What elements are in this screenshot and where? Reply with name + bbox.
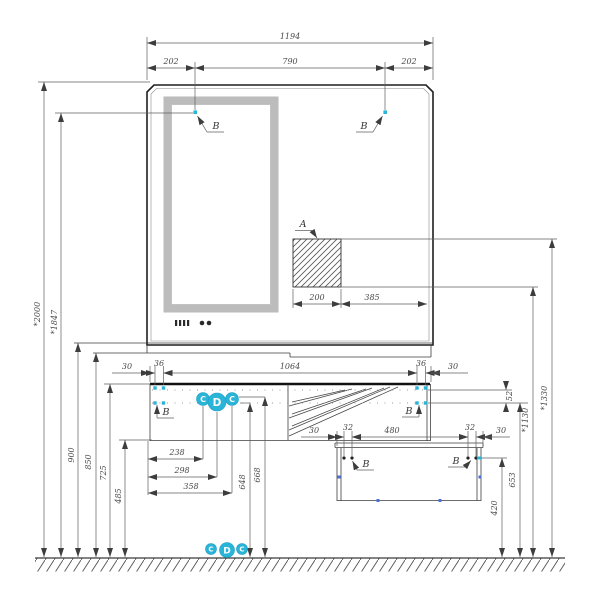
marker-c-label: C — [239, 546, 244, 554]
dim-top-right: 202 — [400, 57, 416, 66]
marker-c-label: C — [200, 395, 206, 404]
callout-b-label: B — [212, 121, 220, 132]
vanity-unit: B B — [74, 343, 433, 441]
fixing-point — [193, 110, 197, 114]
marker-d-label: D — [213, 397, 222, 409]
technical-drawing-canvas: A B B 200 385 — [0, 0, 600, 600]
dim-298: 298 — [173, 466, 189, 475]
dim-1330: *1330 — [540, 386, 549, 410]
dim-under-right-30: 30 — [448, 362, 458, 371]
indicator-dot-icon — [200, 321, 205, 326]
callout-a-label: A — [299, 219, 307, 230]
marker-c-label: C — [208, 546, 213, 554]
bottom-left-dimensions: 238 298 358 648 668 — [148, 397, 265, 557]
dim-648: 648 — [238, 474, 247, 489]
dim-1847: *1847 — [50, 309, 59, 334]
callout-b-vanity-right: B — [402, 405, 419, 417]
dim-top-center: 790 — [282, 57, 297, 66]
dim-420: 420 — [490, 500, 499, 516]
dim-cab-left-32: 32 — [343, 423, 353, 432]
dim-cab-left-30: 30 — [309, 426, 319, 435]
vanity-fixing-points — [153, 386, 427, 404]
vanity-dimensions: 30 36 1064 36 30 — [112, 359, 468, 385]
dim-under-left-30: 30 — [122, 362, 132, 371]
callout-b-vanity-left: B — [157, 405, 174, 418]
dim-1130: *1130 — [521, 408, 530, 432]
mounting-zone-a-hatch — [293, 239, 341, 287]
callout-b-label: B — [362, 459, 370, 470]
dim-total-width: 1194 — [280, 32, 300, 41]
callout-b-label: B — [360, 121, 368, 132]
dim-725: 725 — [99, 465, 108, 480]
ground-hatch — [35, 559, 565, 572]
dim-2000: *2000 — [33, 302, 42, 326]
dim-hatch-width: 200 — [308, 293, 324, 302]
dim-668: 668 — [253, 467, 262, 482]
callout-b-label: B — [452, 456, 460, 467]
dim-under-right-36: 36 — [416, 359, 426, 368]
dim-cab-480: 480 — [383, 426, 399, 435]
dim-238: 238 — [168, 448, 184, 457]
fixing-markers-floor: C D C — [206, 543, 248, 558]
mirror-cabinet: A B B 200 385 — [147, 85, 557, 345]
cabinet-fixing-points — [338, 457, 482, 503]
marker-d-label: D — [223, 547, 230, 557]
dim-cab-right-32: 32 — [465, 423, 475, 432]
dim-653: 653 — [508, 472, 517, 487]
dim-850: 850 — [84, 454, 93, 469]
dim-cab-right-30: 30 — [496, 426, 506, 435]
dim-485: 485 — [114, 488, 123, 504]
callout-b-label: B — [162, 407, 170, 418]
callout-b-label: B — [405, 406, 413, 417]
marker-c-label: C — [229, 395, 235, 404]
dim-hatch-offset: 385 — [364, 293, 379, 302]
dim-358: 358 — [183, 482, 198, 491]
side-cabinet: B B 30 32 480 32 30 — [301, 423, 510, 502]
indicator-dot-icon — [207, 321, 212, 326]
ground-line — [35, 558, 565, 572]
mirror-door — [164, 97, 278, 312]
dim-under-left-36: 36 — [154, 359, 164, 368]
cabinet-dimensions: 30 32 480 32 30 — [301, 423, 510, 456]
fixing-point — [383, 110, 387, 114]
dim-52: 52 — [505, 391, 514, 401]
dim-900: 900 — [67, 447, 76, 462]
callout-b-cabinet-left: B — [353, 459, 375, 470]
dim-under-span: 1064 — [280, 362, 300, 371]
dim-top-left: 202 — [162, 57, 178, 66]
installation-drawing-page: A B B 200 385 — [0, 0, 600, 600]
